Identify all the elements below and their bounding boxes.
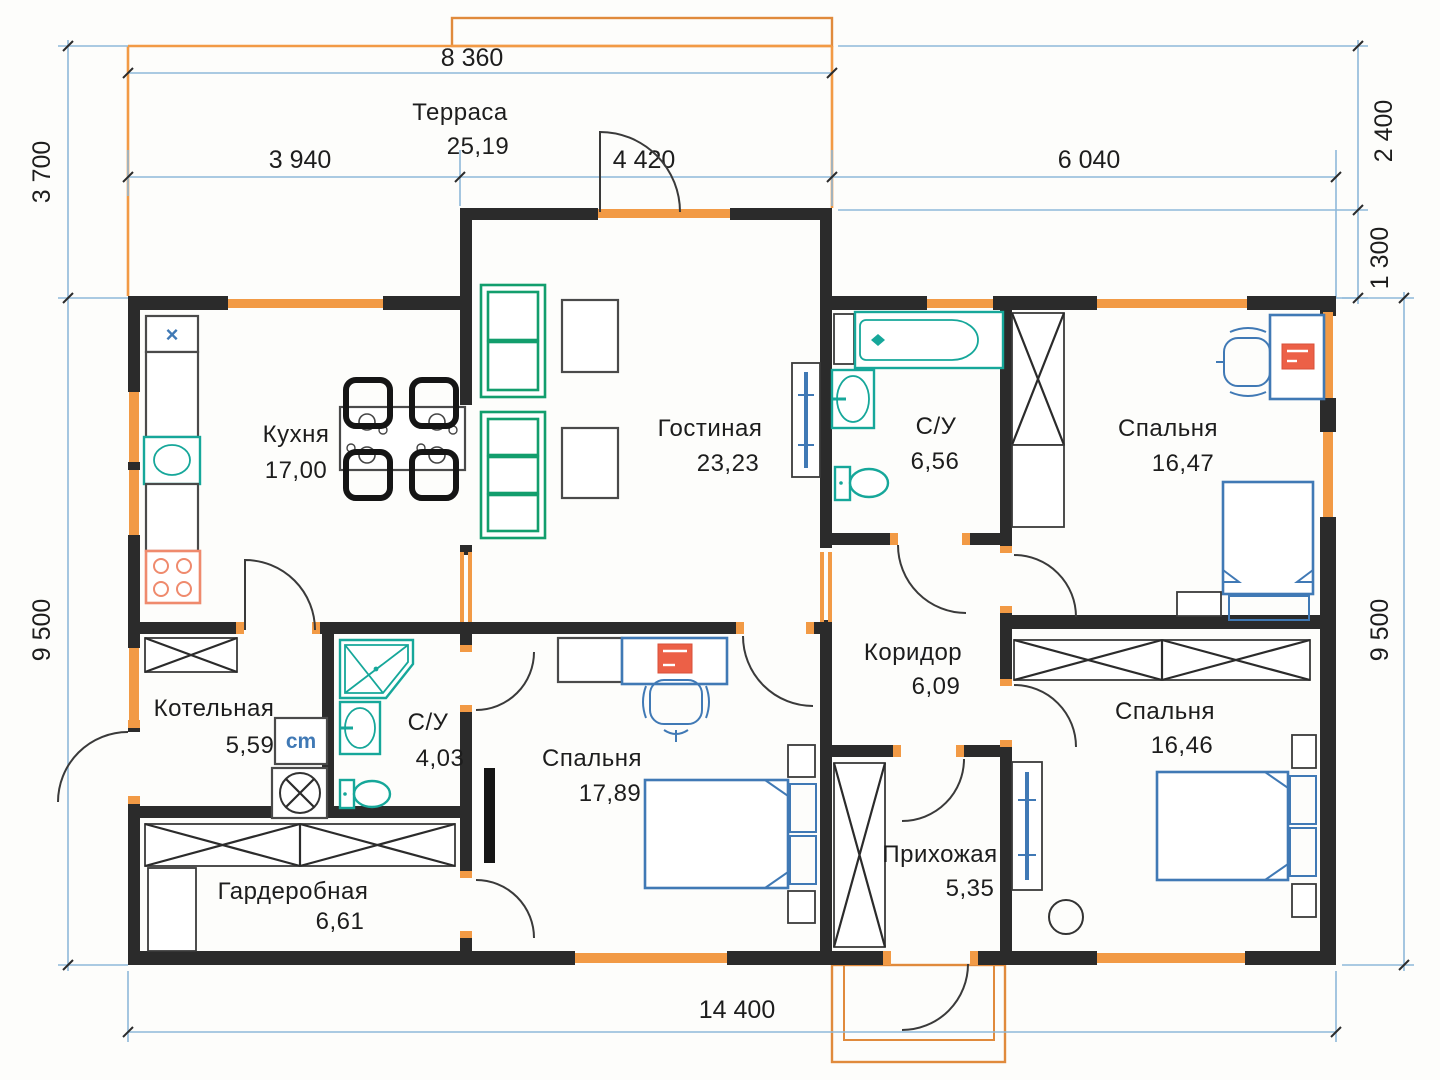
svg-text:cm: cm [286,730,316,753]
dim-right-upper: 1 300 [1366,227,1394,290]
svg-text:4,03: 4,03 [416,745,465,772]
nightstand [788,745,815,777]
svg-text:6,61: 6,61 [316,908,365,935]
svg-text:Коридор: Коридор [864,639,962,666]
svg-text:Гостиная: Гостиная [658,415,763,442]
boiler-window [129,648,139,727]
svg-text:Терраса: Терраса [412,99,508,126]
laptop-icon [658,644,692,673]
wardrobe-symbol [145,638,237,672]
sofa-icon [481,285,545,538]
dim-right-main: 9 500 [1366,599,1394,662]
svg-text:5,35: 5,35 [946,875,995,902]
kitchen-vent-symbol: × [166,322,179,347]
entry-porch-outline [832,965,1005,1062]
svg-text:5,59: 5,59 [226,732,275,759]
bathtub-icon [855,312,1003,368]
bathroom-window [927,299,993,308]
room-label-bedroom-1: Спальня 16,47 [1118,415,1218,477]
bathroom-small-fixtures [340,640,413,808]
kitchen-side-window-b [129,470,139,535]
hallway-furniture [834,763,885,947]
svg-text:16,46: 16,46 [1151,732,1214,759]
wardrobe-shelf [148,868,196,951]
room-label-bathroom-main: С/У 6,56 [911,413,960,475]
bedroom3-window [1097,953,1245,963]
bathroom-small-door-arc [476,652,534,710]
living-room-furniture [481,285,820,538]
svg-text:17,00: 17,00 [265,457,328,484]
tv-icon [484,768,495,863]
svg-text:С/У: С/У [408,709,449,736]
dim-top-left: 3 940 [269,146,332,174]
bedroom2-furniture [484,638,816,923]
kitchen-counter-2 [146,484,198,551]
radiator-icon [792,363,820,477]
bedroom2-window [575,953,727,963]
wardrobe-symbol [1012,313,1064,527]
svg-text:Котельная: Котельная [154,695,275,722]
svg-text:23,23: 23,23 [697,450,760,477]
floor-plan-drawing: 8 360 3 940 4 420 6 040 3 700 9 500 2 40… [0,0,1440,1080]
coffee-table [562,300,618,372]
dim-left-main: 9 500 [28,599,56,662]
wardrobe-symbol [834,763,885,947]
dim-left-top: 3 700 [28,141,56,204]
svg-text:6,09: 6,09 [912,673,961,700]
nightstand [1177,592,1221,616]
dim-top-right: 6 040 [1058,146,1121,174]
floor-plan: 8 360 3 940 4 420 6 040 3 700 9 500 2 40… [0,0,1440,1080]
terrace-door-threshold [598,209,683,218]
dim-top-center: 4 420 [613,146,676,174]
floor-lamp-icon [1049,900,1083,934]
bedroom2-door-arc [743,636,813,706]
kitchen-side-window-a [129,392,139,462]
room-label-hallway: Прихожая 5,35 [882,841,997,902]
svg-text:16,47: 16,47 [1152,450,1215,477]
kitchen-sink-icon [144,437,200,484]
entry-door-arc [902,964,968,1030]
living-window [683,209,730,218]
room-label-bathroom-small: С/У 4,03 [408,709,465,772]
dim-top-terrace: 8 360 [441,44,504,72]
nightstand [1292,884,1316,917]
sink-icon [832,370,874,428]
bath-shelf [834,314,854,364]
room-label-terrace: Терраса 25,19 [412,99,509,160]
svg-text:Гардеробная: Гардеробная [218,878,369,905]
kitchen-door-arc [245,560,315,630]
room-label-wardrobe: Гардеробная 6,61 [218,878,369,935]
bedroom1-side-window-b [1323,432,1333,517]
bedroom1-window [1097,299,1247,308]
radiator-icon [1012,762,1042,890]
room-label-bedroom-2: Спальня 17,89 [542,745,642,807]
desk-icon [1270,315,1324,399]
coffee-table [562,428,618,498]
boiler-room-fixtures: cm [145,638,327,818]
kitchen-counter [146,352,198,437]
office-chair-icon [1216,328,1270,396]
washing-machine-icon: cm [275,718,327,764]
bedroom3-furniture [1012,640,1316,934]
wardrobe-symbol [1014,640,1310,680]
stove-icon [146,551,200,603]
svg-text:25,19: 25,19 [447,133,510,160]
office-chair-icon [643,680,709,742]
room-label-kitchen: Кухня 17,00 [263,421,330,484]
svg-text:Кухня: Кухня [263,421,330,448]
toilet-icon [835,467,888,500]
room-label-living-room: Гостиная 23,23 [658,415,763,477]
sink-icon [340,702,380,754]
svg-text:С/У: С/У [916,413,957,440]
room-label-corridor: Коридор 6,09 [864,639,962,700]
boiler-fan-icon [272,768,327,818]
svg-text:Спальня: Спальня [542,745,642,772]
svg-text:Спальня: Спальня [1118,415,1218,442]
hallway-door-arc [902,759,964,821]
wardrobe-symbol [145,824,455,866]
kitchen-window [228,299,383,308]
nightstand [1292,735,1316,768]
wardrobe-door-arc [476,880,534,938]
dim-right-top: 2 400 [1370,100,1398,163]
bedroom1-door-arc [1014,555,1076,617]
bed-icon [1157,735,1316,917]
svg-text:17,89: 17,89 [579,780,642,807]
dining-table [340,407,465,470]
desk-device [1282,344,1314,369]
bedroom3-door-arc [1014,685,1076,747]
svg-text:Спальня: Спальня [1115,698,1215,725]
bathroom-door-arc [898,545,966,613]
door-arcs [58,132,1076,1030]
bed-icon [1177,482,1313,620]
bed-icon [645,745,816,923]
toilet-icon [340,780,390,808]
shower-icon [340,640,413,698]
room-label-boiler-room: Котельная 5,59 [154,695,275,759]
svg-text:Прихожая: Прихожая [882,841,997,868]
dim-bottom: 14 400 [699,996,775,1024]
room-label-bedroom-3: Спальня 16,46 [1115,698,1215,759]
svg-text:6,56: 6,56 [911,448,960,475]
dresser [558,638,622,682]
nightstand [788,891,815,923]
